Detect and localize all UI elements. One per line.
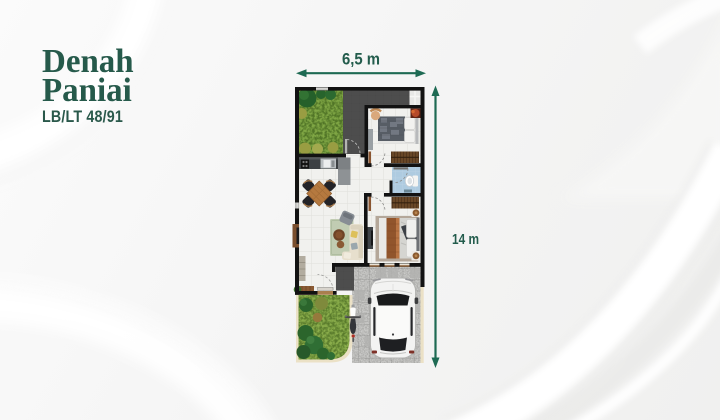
svg-text:14 m: 14 m xyxy=(452,231,479,248)
svg-text:6,5 m: 6,5 m xyxy=(342,50,380,69)
